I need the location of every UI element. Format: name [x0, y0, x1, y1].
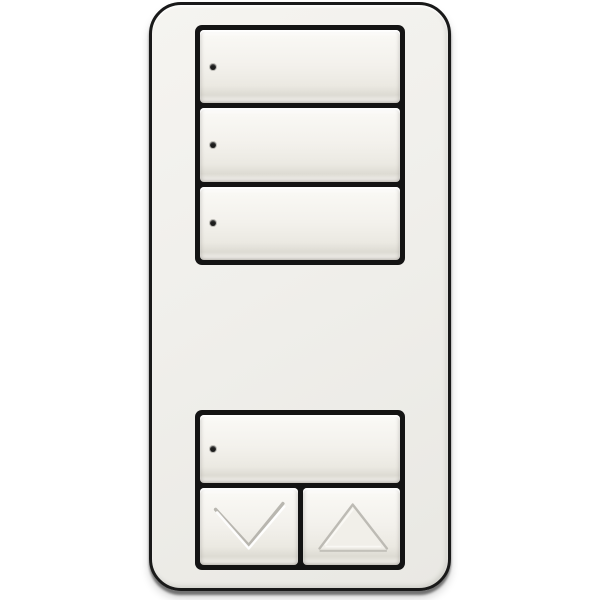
led-indicator: [210, 220, 216, 226]
scene-button-2[interactable]: [200, 108, 400, 181]
keypad-faceplate: [149, 2, 451, 591]
scene-button-3[interactable]: [200, 187, 400, 260]
led-indicator: [210, 64, 216, 70]
chevron-down-icon: [200, 488, 298, 565]
lower-button[interactable]: [200, 488, 298, 565]
triangle-up-icon: [303, 488, 401, 565]
main-button[interactable]: [200, 415, 400, 483]
rocker-row: [200, 488, 400, 565]
led-indicator: [210, 446, 216, 452]
top-button-bank: [195, 25, 405, 265]
scene-button-1[interactable]: [200, 30, 400, 103]
led-indicator: [210, 142, 216, 148]
raise-button[interactable]: [303, 488, 401, 565]
bottom-button-bank: [195, 410, 405, 570]
